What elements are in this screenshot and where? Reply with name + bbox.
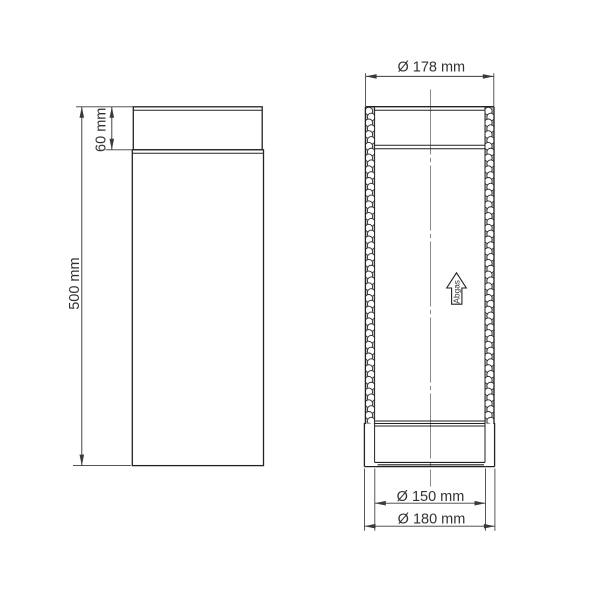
svg-text:Ø 178 mm: Ø 178 mm [397, 59, 465, 75]
svg-text:Ø 180 mm: Ø 180 mm [398, 511, 466, 527]
svg-text:Abgas: Abgas [451, 280, 461, 304]
svg-text:Ø 150 mm: Ø 150 mm [397, 489, 465, 505]
svg-text:60 mm: 60 mm [93, 108, 109, 152]
svg-text:500 mm: 500 mm [67, 257, 83, 309]
